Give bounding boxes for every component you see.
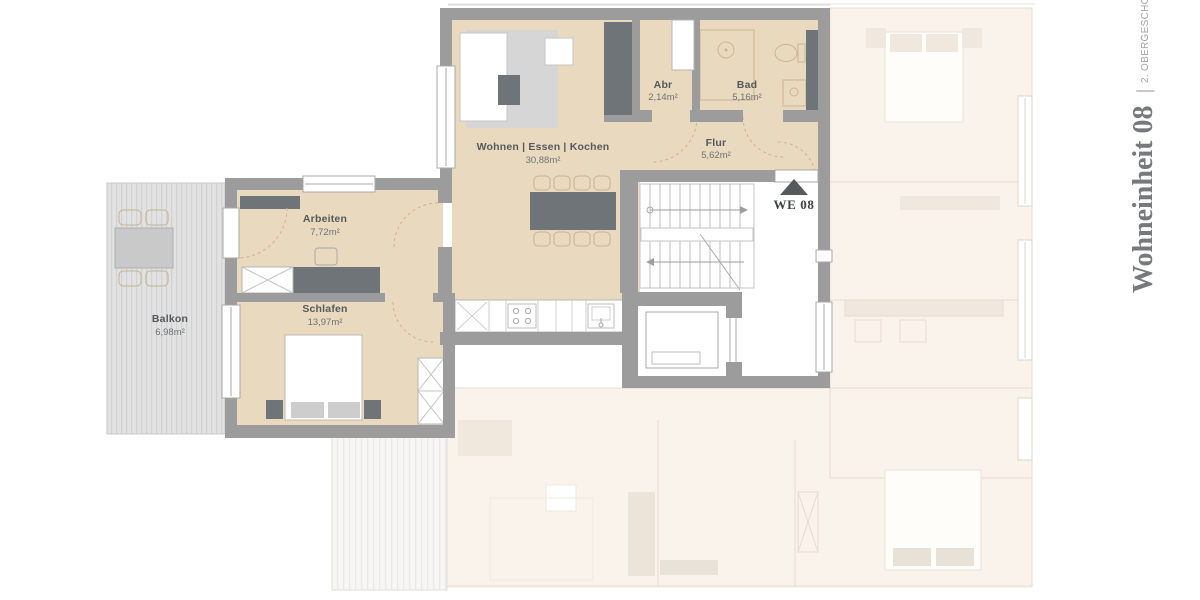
flur-area: 5,62m² — [701, 150, 731, 161]
stairwell — [640, 184, 754, 290]
unit-entrance-marker: WE 08 — [774, 179, 815, 212]
unit-marker-label: WE 08 — [774, 197, 815, 212]
abr-area: 2,14m² — [648, 92, 678, 103]
schlafen-area: 13,97m² — [308, 317, 343, 328]
desk — [240, 196, 300, 209]
balkon-label: Balkon — [152, 313, 188, 325]
page-title: Wohneinheit 08 | 2. OBERGESCHOSS — [1128, 0, 1159, 293]
coffee-table — [498, 75, 520, 105]
balcony: Balkon 6,98m² — [107, 183, 225, 434]
nightstand — [364, 400, 381, 419]
flur-label: Flur — [706, 137, 727, 149]
wohnen-area: 30,88m² — [526, 155, 561, 166]
dining-table — [530, 192, 616, 230]
elevator — [622, 292, 742, 388]
kitchen-counter — [455, 300, 627, 332]
bad-area: 5,16m² — [732, 92, 762, 103]
unit-we08: WE 08 Wohnen | Essen | Kochen 30,88m² Ab… — [222, 5, 832, 438]
floorplan-canvas: Balkon 6,98m² — [0, 0, 1200, 600]
floorplan-svg: Balkon 6,98m² — [0, 0, 1200, 600]
balkon-area: 6,98m² — [155, 327, 185, 338]
tall-cabinet — [604, 22, 632, 115]
nightstand — [266, 400, 283, 419]
schlafen-label: Schlafen — [302, 303, 347, 315]
arbeiten-area: 7,72m² — [310, 227, 340, 238]
bad-label: Bad — [737, 79, 757, 91]
page-title-separator: | — [1133, 89, 1155, 93]
page-title-floor: 2. OBERGESCHOSS — [1140, 0, 1151, 83]
abr-label: Abr — [654, 79, 673, 91]
wohnen-label: Wohnen | Essen | Kochen — [477, 141, 610, 153]
sideboard — [293, 267, 380, 293]
page-title-unit: Wohneinheit 08 — [1128, 106, 1159, 293]
arbeiten-label: Arbeiten — [303, 213, 347, 225]
